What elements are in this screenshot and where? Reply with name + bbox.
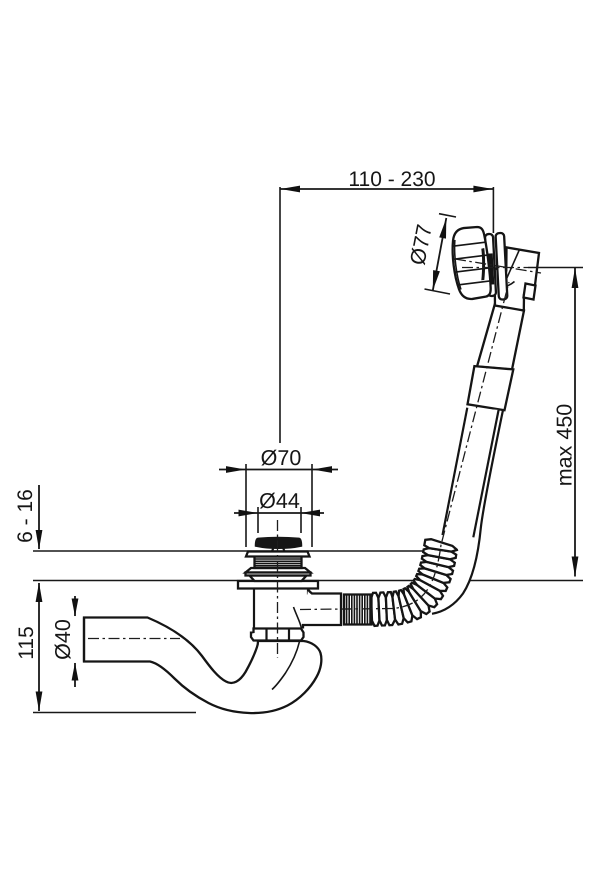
- svg-text:Ø70: Ø70: [261, 446, 302, 470]
- svg-text:max 450: max 450: [553, 404, 577, 487]
- svg-text:110 - 230: 110 - 230: [348, 168, 435, 191]
- svg-text:Ø40: Ø40: [51, 619, 75, 660]
- svg-text:115: 115: [15, 626, 38, 659]
- svg-text:Ø44: Ø44: [259, 489, 300, 513]
- svg-text:6 - 16: 6 - 16: [14, 489, 37, 543]
